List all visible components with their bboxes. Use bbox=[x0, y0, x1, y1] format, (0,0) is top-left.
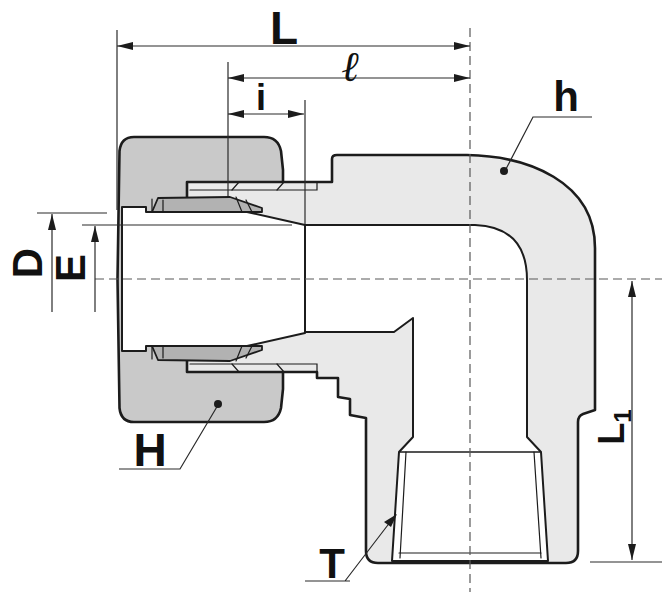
dimension-L: L bbox=[117, 2, 470, 54]
label-h: h bbox=[553, 73, 579, 120]
label-H: H bbox=[133, 424, 166, 476]
label-T: T bbox=[319, 540, 345, 587]
label-L: L bbox=[270, 2, 298, 54]
label-D: D bbox=[4, 248, 51, 278]
label-ell: ℓ bbox=[341, 42, 359, 91]
dimension-i: i bbox=[228, 77, 304, 118]
dimension-L1: L1 bbox=[591, 281, 636, 560]
label-L1: L1 bbox=[591, 409, 636, 444]
elbow-fitting-drawing: L ℓ i D E L1 H bbox=[0, 0, 671, 600]
technical-drawing-canvas: L ℓ i D E L1 H bbox=[0, 0, 671, 600]
label-E: E bbox=[47, 254, 94, 282]
label-i: i bbox=[256, 77, 266, 118]
